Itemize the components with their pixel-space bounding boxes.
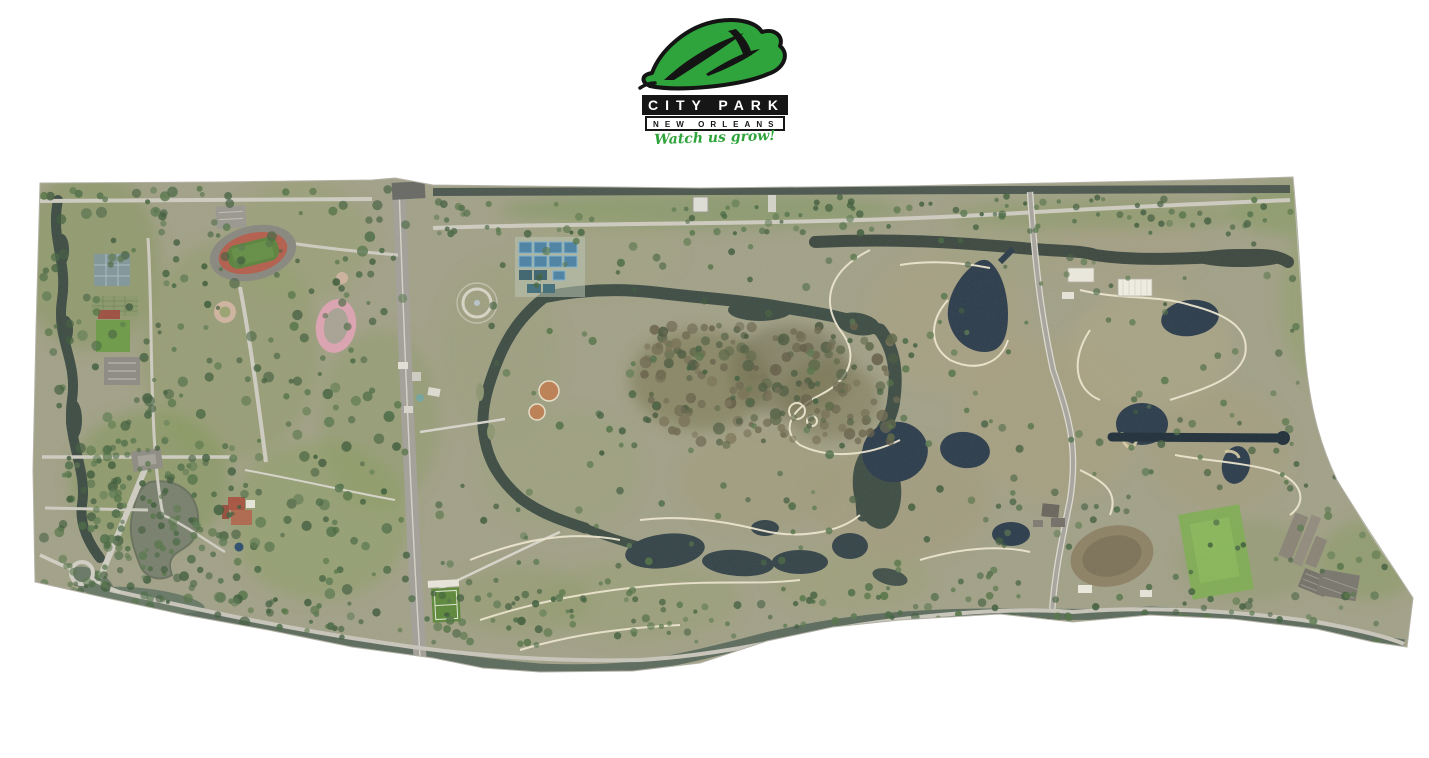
aerial-map [0, 0, 1429, 758]
page: CITY PARK NEW ORLEANS Watch us grow! [0, 0, 1429, 758]
photo-grain [20, 160, 1420, 680]
